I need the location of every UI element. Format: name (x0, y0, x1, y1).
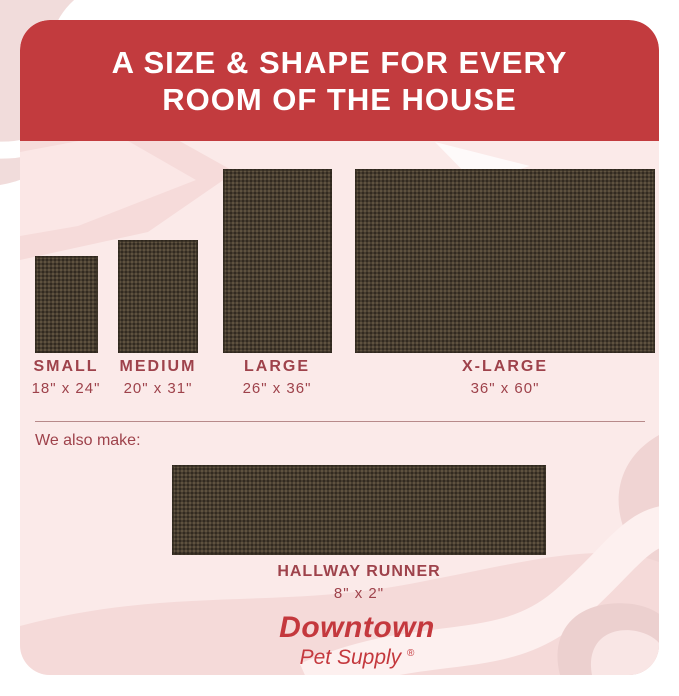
infographic-panel: A SIZE & SHAPE FOR EVERY ROOM OF THE HOU… (20, 20, 659, 675)
mat-dimensions-xlarge: 36" x 60" (462, 380, 548, 397)
mat-dimensions-hallway-runner: 8" x 2" (277, 585, 440, 602)
mat-label-large: LARGE 26" x 36" (243, 358, 312, 397)
mat-dimensions-large: 26" x 36" (243, 380, 312, 397)
mat-name-small: SMALL (32, 358, 101, 376)
mat-name-hallway-runner: HALLWAY RUNNER (277, 563, 440, 581)
header-title-line1: A SIZE & SHAPE FOR EVERY (112, 44, 568, 81)
mat-name-medium: MEDIUM (120, 358, 197, 376)
brand-name: Downtown (279, 613, 435, 643)
registered-trademark-symbol: ® (407, 648, 414, 659)
mat-label-hallway-runner: HALLWAY RUNNER 8" x 2" (277, 563, 440, 602)
mat-label-medium: MEDIUM 20" x 31" (120, 358, 197, 397)
mat-dimensions-small: 18" x 24" (32, 380, 101, 397)
mat-label-xlarge: X-LARGE 36" x 60" (462, 358, 548, 397)
brand-subtitle: Pet Supply ® (279, 643, 435, 669)
mat-swatch-medium (118, 240, 198, 353)
mat-dimensions-medium: 20" x 31" (120, 380, 197, 397)
mat-swatch-xlarge (355, 169, 655, 353)
header-banner: A SIZE & SHAPE FOR EVERY ROOM OF THE HOU… (20, 20, 659, 141)
mat-name-xlarge: X-LARGE (462, 358, 548, 376)
brand-subtitle-text: Pet Supply (300, 646, 402, 669)
mat-swatch-small (35, 256, 98, 353)
brand-logo: Downtown Pet Supply ® (279, 613, 435, 669)
also-make-label: We also make: (35, 432, 141, 450)
header-title-line2: ROOM OF THE HOUSE (162, 81, 517, 118)
mat-swatch-hallway-runner (172, 465, 546, 555)
mat-label-small: SMALL 18" x 24" (32, 358, 101, 397)
mat-swatch-large (223, 169, 332, 353)
section-divider (35, 421, 645, 422)
mat-name-large: LARGE (243, 358, 312, 376)
